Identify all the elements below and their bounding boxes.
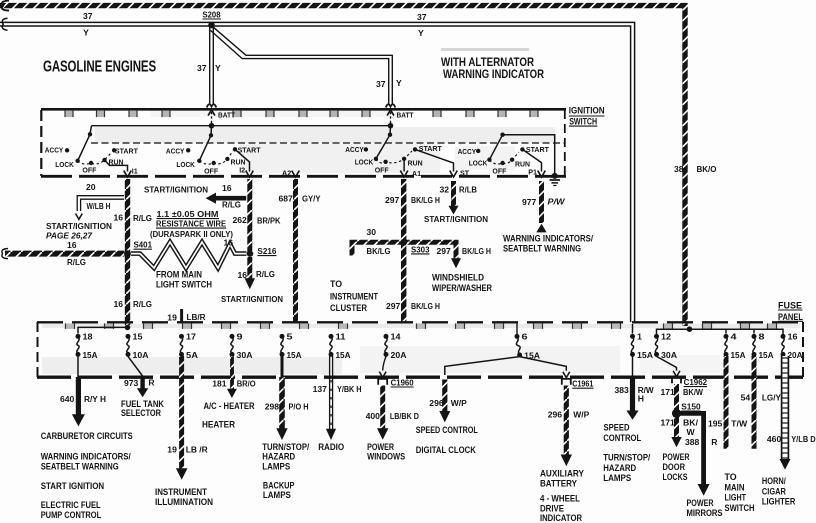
svg-text:ELECTRIC FUEL: ELECTRIC FUEL	[41, 500, 102, 510]
svg-text:BATT: BATT	[218, 111, 236, 120]
svg-text:LIGHT SWITCH: LIGHT SWITCH	[156, 280, 212, 290]
svg-text:BATT: BATT	[397, 111, 415, 120]
svg-text:1: 1	[637, 332, 642, 342]
svg-text:OFF: OFF	[204, 167, 219, 176]
svg-text:15A: 15A	[336, 350, 351, 360]
svg-text:BK/W: BK/W	[683, 387, 704, 397]
svg-text:A2: A2	[282, 168, 291, 177]
svg-text:297: 297	[386, 301, 401, 311]
svg-text:16: 16	[238, 270, 248, 280]
svg-text:LOCK: LOCK	[176, 160, 195, 169]
svg-text:A/C - HEATER: A/C - HEATER	[204, 401, 256, 411]
svg-text:20: 20	[86, 182, 96, 192]
svg-text:Y: Y	[418, 28, 424, 38]
svg-text:ACCY: ACCY	[166, 147, 185, 156]
svg-text:15A: 15A	[759, 350, 774, 360]
svg-text:HAZARD: HAZARD	[262, 452, 295, 462]
svg-text:TURN/STOP/: TURN/STOP/	[262, 442, 309, 452]
svg-text:LIGHTER: LIGHTER	[762, 497, 796, 507]
svg-text:16: 16	[114, 299, 124, 309]
svg-text:P/O H: P/O H	[289, 402, 309, 412]
svg-text:S401: S401	[134, 240, 153, 250]
svg-text:CONTROL: CONTROL	[603, 433, 642, 443]
svg-text:C1960: C1960	[391, 378, 414, 388]
svg-text:10A: 10A	[133, 350, 149, 360]
svg-text:4: 4	[731, 332, 737, 342]
svg-text:FROM MAIN: FROM MAIN	[156, 269, 202, 279]
svg-text:OFF: OFF	[492, 167, 507, 176]
svg-text:19: 19	[167, 445, 177, 455]
svg-text:R/LB: R/LB	[459, 185, 477, 195]
svg-text:54: 54	[741, 393, 751, 403]
svg-text:LAMPS: LAMPS	[603, 473, 631, 483]
svg-text:297: 297	[385, 195, 400, 205]
svg-text:CIGAR: CIGAR	[762, 486, 787, 496]
svg-text:W: W	[687, 427, 696, 437]
svg-text:SPEED CONTROL: SPEED CONTROL	[416, 425, 479, 435]
svg-text:640: 640	[60, 394, 75, 404]
svg-text:BR/PK: BR/PK	[257, 216, 281, 226]
svg-text:BK/LG H: BK/LG H	[462, 246, 491, 256]
svg-text:LB/BK D: LB/BK D	[390, 411, 419, 421]
svg-text:TO: TO	[725, 472, 737, 482]
svg-text:12: 12	[661, 332, 671, 342]
svg-text:W/P: W/P	[573, 410, 589, 420]
svg-text:BK/O: BK/O	[697, 164, 717, 174]
svg-text:RUN: RUN	[408, 159, 423, 168]
svg-text:MAIN: MAIN	[725, 483, 745, 493]
svg-text:WARNING INDICATOR: WARNING INDICATOR	[443, 68, 545, 81]
svg-text:973: 973	[124, 378, 139, 388]
svg-text:S303: S303	[411, 244, 430, 254]
svg-text:977: 977	[522, 197, 537, 207]
svg-text:ILLUMINATION: ILLUMINATION	[155, 497, 213, 507]
svg-text:HORN/: HORN/	[762, 476, 786, 486]
svg-text:OFF: OFF	[82, 166, 97, 175]
svg-text:START/IGNITION: START/IGNITION	[221, 294, 283, 304]
svg-text:HEATER: HEATER	[202, 420, 236, 430]
svg-text:BR/O: BR/O	[237, 379, 256, 389]
svg-text:POWER: POWER	[687, 498, 715, 508]
svg-text:A1: A1	[412, 169, 421, 178]
svg-text:ACCY: ACCY	[45, 146, 64, 155]
svg-text:ACCY: ACCY	[458, 147, 477, 156]
svg-text:38: 38	[674, 164, 684, 174]
svg-text:(DURASPARK II ONLY): (DURASPARK II ONLY)	[150, 229, 233, 239]
svg-text:171: 171	[661, 418, 676, 428]
svg-text:16: 16	[222, 183, 232, 193]
svg-text:400: 400	[366, 411, 381, 421]
svg-text:1.1 ±0.05 OHM: 1.1 ±0.05 OHM	[157, 209, 219, 219]
svg-text:14: 14	[391, 332, 401, 342]
svg-text:30A: 30A	[237, 350, 253, 360]
svg-text:WINDSHIELD: WINDSHIELD	[432, 273, 484, 283]
svg-text:16: 16	[788, 332, 798, 342]
svg-text:PUMP CONTROL: PUMP CONTROL	[41, 510, 102, 520]
svg-text:298: 298	[265, 402, 280, 412]
svg-text:BK/LG H: BK/LG H	[411, 195, 440, 205]
svg-text:ST: ST	[460, 168, 470, 177]
svg-text:W/P: W/P	[451, 398, 467, 408]
svg-text:I2: I2	[239, 166, 245, 175]
svg-text:W/LB H: W/LB H	[87, 201, 111, 211]
svg-text:30: 30	[367, 227, 377, 237]
svg-text:R/Y H: R/Y H	[84, 394, 106, 404]
svg-text:Y: Y	[215, 63, 221, 73]
svg-text:S150: S150	[681, 402, 701, 412]
svg-text:LOCK: LOCK	[469, 158, 488, 167]
svg-text:137: 137	[313, 384, 328, 394]
svg-text:17: 17	[186, 332, 196, 342]
svg-text:687: 687	[279, 194, 294, 204]
svg-text:R/LG: R/LG	[256, 269, 275, 279]
svg-text:16: 16	[224, 238, 234, 248]
svg-text:16: 16	[114, 213, 124, 223]
svg-text:POWER: POWER	[367, 442, 395, 452]
svg-text:R: R	[711, 437, 718, 447]
svg-text:LAMPS: LAMPS	[262, 461, 290, 471]
svg-text:9: 9	[237, 332, 243, 342]
svg-text:BACKUP: BACKUP	[263, 480, 295, 490]
svg-text:171: 171	[661, 387, 676, 397]
svg-text:20A: 20A	[391, 350, 407, 360]
svg-text:388: 388	[685, 437, 700, 447]
svg-text:37: 37	[197, 63, 207, 73]
svg-text:5A: 5A	[186, 350, 198, 360]
svg-text:OFF: OFF	[375, 165, 390, 174]
svg-text:DOOR: DOOR	[663, 462, 686, 472]
svg-text:383: 383	[615, 385, 630, 395]
svg-text:296: 296	[429, 398, 444, 408]
svg-text:I1: I1	[132, 167, 138, 176]
svg-text:P1: P1	[528, 167, 537, 176]
svg-text:MIRRORS: MIRRORS	[687, 508, 723, 518]
svg-text:R/LG: R/LG	[133, 299, 152, 309]
svg-text:LIGHT: LIGHT	[725, 493, 747, 503]
svg-text:LOCK: LOCK	[355, 158, 374, 167]
svg-text:R: R	[148, 378, 155, 388]
svg-text:C1961: C1961	[572, 379, 593, 389]
svg-text:GASOLINE ENGINES: GASOLINE ENGINES	[43, 59, 156, 76]
svg-text:START IGNITION: START IGNITION	[41, 481, 104, 491]
svg-text:INDICATOR: INDICATOR	[540, 513, 583, 523]
svg-text:6: 6	[522, 332, 528, 342]
svg-text:181: 181	[212, 379, 227, 389]
svg-text:WARNING INDICATORS/: WARNING INDICATORS/	[41, 452, 131, 462]
svg-text:START/IGNITION: START/IGNITION	[424, 214, 488, 224]
svg-text:Y: Y	[83, 28, 89, 38]
svg-text:H: H	[638, 394, 644, 404]
svg-text:START/IGNITION: START/IGNITION	[144, 185, 208, 195]
svg-text:18: 18	[83, 332, 93, 342]
svg-text:TURN/STOP/: TURN/STOP/	[603, 453, 650, 463]
svg-text:296: 296	[548, 410, 563, 420]
svg-text:INSTRUMENT: INSTRUMENT	[155, 487, 208, 497]
svg-text:LAMPS: LAMPS	[263, 490, 291, 500]
svg-text:SEATBELT WARNING: SEATBELT WARNING	[503, 244, 581, 254]
svg-text:FUSE: FUSE	[778, 301, 802, 311]
svg-text:CLUSTER: CLUSTER	[330, 303, 368, 313]
svg-text:RESISTANCE WIRE: RESISTANCE WIRE	[156, 219, 226, 229]
svg-text:LOCK: LOCK	[55, 160, 74, 169]
svg-text:P/W: P/W	[548, 197, 566, 207]
svg-text:R/LG: R/LG	[222, 200, 241, 210]
svg-text:11: 11	[336, 332, 346, 342]
svg-text:262: 262	[233, 215, 248, 225]
svg-text:SWITCH: SWITCH	[569, 117, 597, 127]
svg-text:CARBURETOR CIRCUITS: CARBURETOR CIRCUITS	[41, 431, 133, 441]
svg-text:WINDOWS: WINDOWS	[367, 452, 405, 462]
svg-text:30A: 30A	[661, 350, 677, 360]
svg-text:DIGITAL CLOCK: DIGITAL CLOCK	[416, 445, 477, 455]
svg-text:460: 460	[767, 434, 782, 444]
svg-text:GY/Y: GY/Y	[302, 194, 321, 204]
svg-text:SPEED: SPEED	[604, 423, 630, 433]
svg-text:SWITCH: SWITCH	[725, 503, 755, 513]
svg-text:Y/BK H: Y/BK H	[337, 384, 362, 394]
svg-text:DRIVE: DRIVE	[540, 504, 564, 514]
svg-text:195: 195	[708, 418, 723, 428]
svg-text:INSTRUMENT: INSTRUMENT	[330, 292, 379, 302]
svg-text:15A: 15A	[637, 350, 653, 360]
svg-text:POWER: POWER	[663, 452, 691, 462]
svg-text:SEATBELT WARNING: SEATBELT WARNING	[41, 462, 119, 472]
svg-text:15: 15	[133, 332, 143, 342]
svg-text:37: 37	[83, 11, 93, 21]
svg-text:Y/LB D: Y/LB D	[791, 434, 816, 444]
svg-text:20A: 20A	[788, 350, 803, 360]
svg-text:RADIO: RADIO	[318, 442, 344, 452]
svg-text:R/LG: R/LG	[67, 257, 86, 267]
svg-text:S208: S208	[203, 10, 221, 20]
svg-text:297: 297	[437, 246, 452, 256]
svg-text:15A: 15A	[287, 350, 302, 360]
svg-text:32: 32	[440, 185, 450, 195]
svg-text:WIPER/WASHER: WIPER/WASHER	[432, 283, 493, 293]
svg-text:ACCY: ACCY	[345, 145, 364, 154]
svg-text:S216: S216	[257, 246, 276, 256]
svg-text:LB /R: LB /R	[186, 445, 209, 455]
svg-text:WARNING INDICATORS/: WARNING INDICATORS/	[503, 234, 593, 244]
svg-text:AUXILIARY: AUXILIARY	[540, 469, 584, 479]
svg-text:START: START	[526, 145, 550, 154]
svg-text:T/W: T/W	[731, 418, 748, 428]
svg-text:19: 19	[167, 312, 177, 322]
svg-text:TO: TO	[330, 279, 342, 289]
svg-text:SELECTOR: SELECTOR	[121, 408, 162, 418]
svg-text:8: 8	[759, 332, 765, 342]
svg-text:4 - WHEEL: 4 - WHEEL	[540, 494, 581, 504]
svg-text:37: 37	[376, 79, 386, 89]
svg-text:START: START	[115, 147, 139, 156]
svg-text:LG/Y: LG/Y	[762, 393, 781, 403]
svg-text:IGNITION: IGNITION	[569, 106, 605, 116]
svg-text:LB/R: LB/R	[187, 312, 207, 322]
svg-text:HAZARD: HAZARD	[603, 463, 636, 473]
svg-text:PAGE 26,27: PAGE 26,27	[46, 230, 93, 240]
svg-text:C1962: C1962	[684, 377, 708, 387]
svg-text:15A: 15A	[731, 350, 746, 360]
svg-text:5: 5	[287, 332, 293, 342]
svg-text:15A: 15A	[83, 350, 98, 360]
svg-text:START: START	[238, 146, 262, 155]
svg-text:BK/LG: BK/LG	[367, 246, 391, 256]
svg-text:37: 37	[417, 12, 427, 22]
svg-text:BK/LG H: BK/LG H	[411, 301, 440, 311]
svg-text:BATTERY: BATTERY	[540, 478, 577, 488]
svg-text:PANEL: PANEL	[778, 312, 803, 322]
svg-text:R/LG: R/LG	[133, 213, 152, 223]
svg-text:LOCKS: LOCKS	[663, 472, 688, 482]
svg-text:16: 16	[67, 240, 77, 250]
svg-text:Y: Y	[396, 78, 402, 88]
